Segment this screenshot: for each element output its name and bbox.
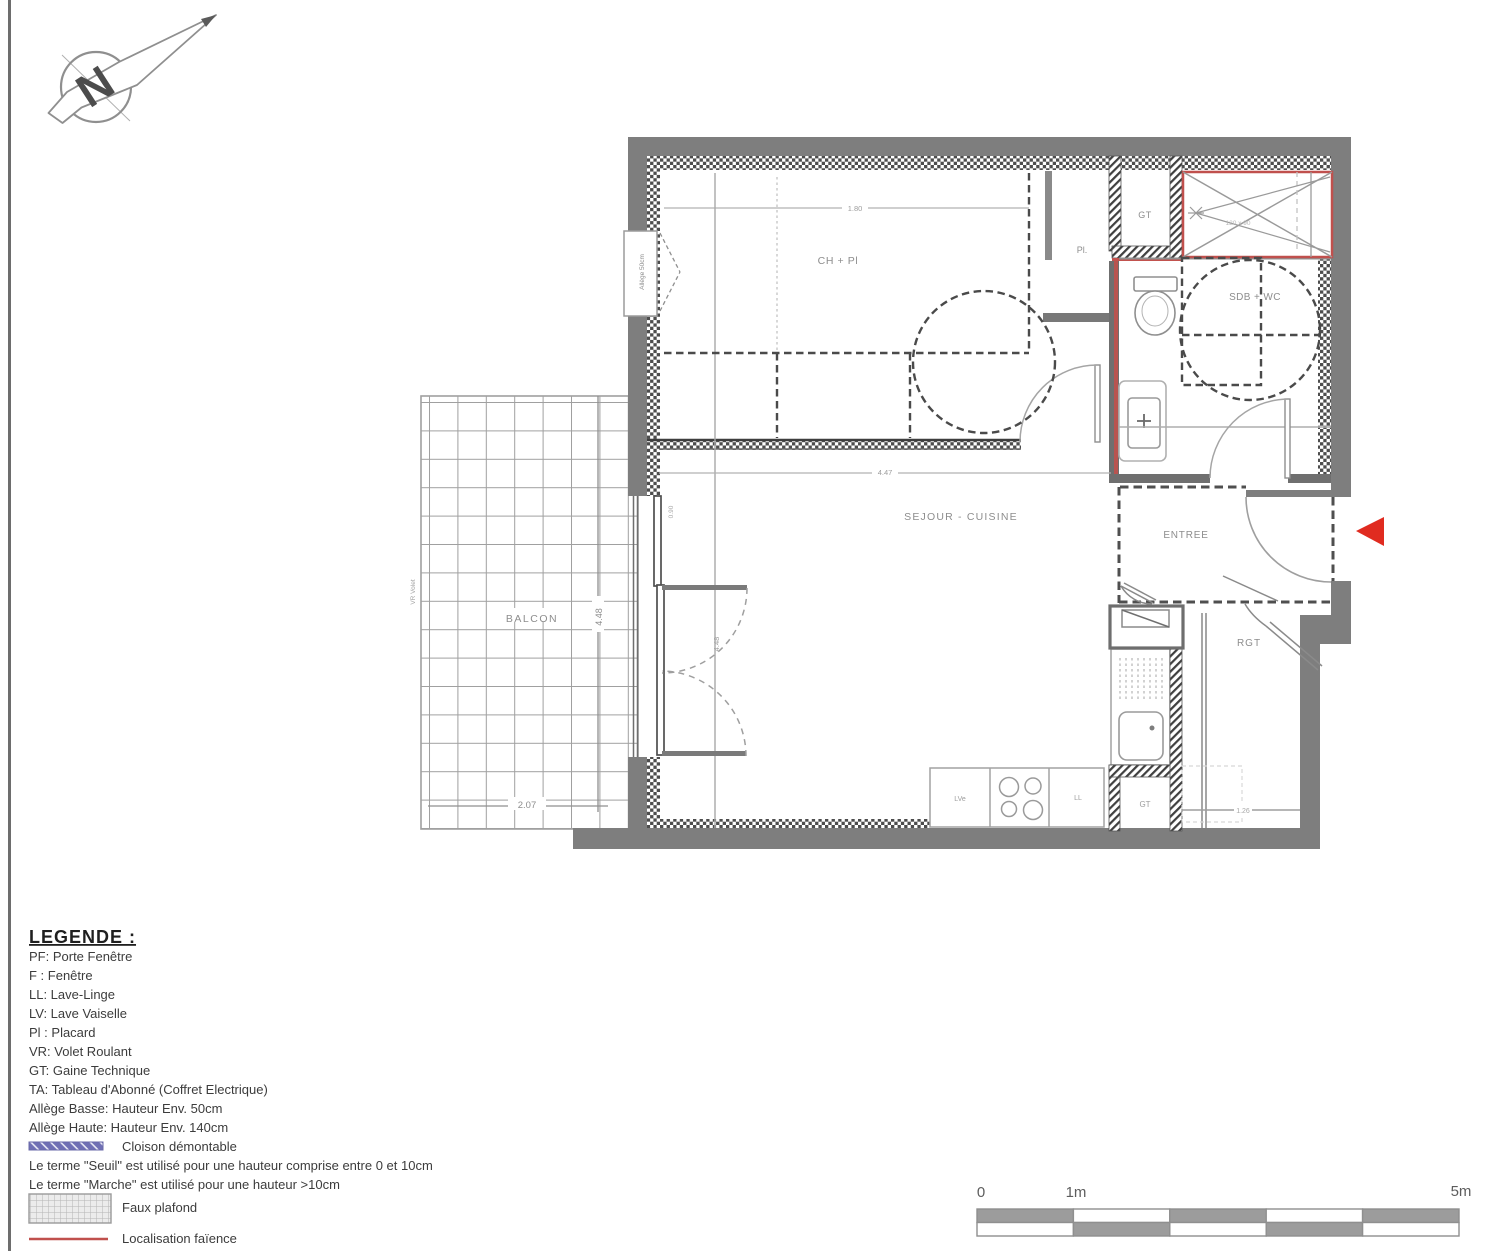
svg-text:Pl : Placard: Pl : Placard bbox=[29, 1025, 95, 1040]
svg-text:Allège Haute: Hauteur Env. 140: Allège Haute: Hauteur Env. 140cm bbox=[29, 1120, 228, 1135]
svg-text:Le terme "Marche" est utilisé: Le terme "Marche" est utilisé pour une h… bbox=[29, 1177, 340, 1192]
svg-text:Le terme "Seuil" est utilisé p: Le terme "Seuil" est utilisé pour une ha… bbox=[29, 1158, 433, 1173]
svg-text:LL: LL bbox=[1074, 795, 1082, 802]
svg-text:1.80: 1.80 bbox=[848, 204, 863, 213]
svg-text:2.07: 2.07 bbox=[518, 800, 537, 811]
svg-text:4.48: 4.48 bbox=[594, 608, 604, 626]
svg-text:Faux plafond: Faux plafond bbox=[122, 1200, 197, 1215]
svg-text:LVe: LVe bbox=[954, 796, 966, 803]
svg-text:4.47: 4.47 bbox=[878, 468, 893, 477]
svg-text:0.90: 0.90 bbox=[668, 505, 675, 518]
svg-text:LEGENDE :: LEGENDE : bbox=[29, 927, 136, 947]
svg-text:RGT: RGT bbox=[1237, 638, 1261, 649]
svg-text:5m: 5m bbox=[1451, 1183, 1472, 1200]
svg-text:CH + Pl: CH + Pl bbox=[818, 255, 859, 267]
svg-text:PF: Porte Fenêtre: PF: Porte Fenêtre bbox=[29, 949, 132, 964]
svg-text:GT: GT bbox=[1139, 800, 1150, 809]
svg-text:VR: Volet Roulant: VR: Volet Roulant bbox=[29, 1044, 132, 1059]
svg-text:TA: Tableau d'Abonné (Coffret: TA: Tableau d'Abonné (Coffret Electrique… bbox=[29, 1082, 268, 1097]
svg-text:LL: Lave-Linge: LL: Lave-Linge bbox=[29, 987, 115, 1002]
svg-text:1m: 1m bbox=[1066, 1184, 1087, 1201]
svg-text:Localisation faïence: Localisation faïence bbox=[122, 1231, 237, 1246]
svg-text:SDB + WC: SDB + WC bbox=[1229, 292, 1281, 303]
svg-text:Cloison démontable: Cloison démontable bbox=[122, 1139, 237, 1154]
svg-text:0: 0 bbox=[977, 1184, 985, 1201]
svg-text:SEJOUR - CUISINE: SEJOUR - CUISINE bbox=[904, 511, 1018, 523]
svg-text:GT: GT bbox=[1138, 210, 1152, 220]
svg-text:Pl.: Pl. bbox=[1077, 245, 1088, 255]
svg-text:GT: Gaine Technique: GT: Gaine Technique bbox=[29, 1063, 150, 1078]
svg-text:120 x 90: 120 x 90 bbox=[1226, 220, 1251, 227]
svg-text:4.48: 4.48 bbox=[712, 637, 721, 652]
svg-text:LV: Lave Vaiselle: LV: Lave Vaiselle bbox=[29, 1006, 127, 1021]
svg-text:1.26: 1.26 bbox=[1236, 808, 1250, 815]
svg-text:BALCON: BALCON bbox=[506, 613, 558, 625]
svg-text:ENTREE: ENTREE bbox=[1163, 530, 1208, 541]
svg-text:Allège Basse: Hauteur Env. 50c: Allège Basse: Hauteur Env. 50cm bbox=[29, 1101, 222, 1116]
svg-text:Allège 50cm: Allège 50cm bbox=[639, 254, 646, 290]
svg-text:VR Volet: VR Volet bbox=[410, 579, 417, 604]
svg-text:F : Fenêtre: F : Fenêtre bbox=[29, 968, 93, 983]
